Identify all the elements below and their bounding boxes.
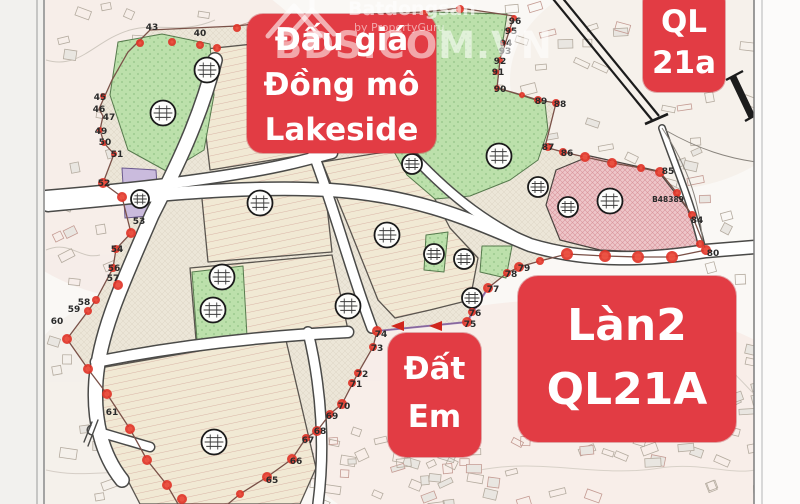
svg-text:59: 59	[68, 305, 81, 315]
svg-text:40: 40	[194, 29, 207, 39]
plot-line1: Đất	[388, 345, 481, 393]
svg-text:89: 89	[535, 97, 548, 107]
svg-text:86: 86	[561, 149, 574, 159]
svg-text:56: 56	[108, 264, 121, 274]
svg-text:71: 71	[350, 380, 363, 390]
svg-text:95: 95	[505, 27, 518, 37]
svg-text:87: 87	[542, 143, 555, 153]
svg-text:79: 79	[518, 264, 531, 274]
svg-text:51: 51	[111, 150, 124, 160]
svg-text:92: 92	[494, 57, 507, 67]
svg-text:61: 61	[106, 408, 119, 418]
highway-line1: QL	[643, 2, 725, 43]
plot-label-box: Đất Em	[388, 333, 481, 457]
svg-text:72: 72	[356, 370, 369, 380]
svg-text:60: 60	[51, 317, 64, 327]
svg-text:77: 77	[487, 285, 500, 295]
svg-text:52: 52	[98, 179, 111, 189]
svg-text:88: 88	[554, 100, 567, 110]
svg-text:78: 78	[505, 270, 518, 280]
auction-line1: Đấu giá	[247, 18, 436, 63]
lane-line2: QL21A	[518, 358, 736, 422]
svg-text:53: 53	[133, 217, 146, 227]
svg-text:65: 65	[266, 476, 279, 486]
auction-line3: Lakeside	[247, 108, 436, 153]
highway-line2: 21a	[643, 43, 725, 84]
svg-text:54: 54	[111, 245, 124, 255]
svg-text:69: 69	[326, 412, 339, 422]
svg-text:70: 70	[338, 402, 351, 412]
svg-text:45: 45	[94, 93, 107, 103]
svg-text:67: 67	[302, 436, 315, 446]
svg-text:49: 49	[95, 127, 108, 137]
svg-text:66: 66	[290, 457, 303, 467]
svg-text:50: 50	[99, 138, 112, 148]
svg-text:91: 91	[492, 68, 505, 78]
svg-text:96: 96	[509, 17, 522, 27]
svg-text:80: 80	[707, 249, 720, 259]
auction-label-box: Đấu giá Đồng mô Lakeside	[247, 14, 436, 153]
svg-text:84: 84	[691, 216, 704, 226]
svg-text:57: 57	[107, 274, 120, 284]
lane-label-box: Làn2 QL21A	[518, 276, 736, 442]
screenshot-root: 4340454647495051525354565758596061656667…	[0, 0, 800, 504]
auction-line2: Đồng mô	[247, 63, 436, 108]
svg-text:74: 74	[375, 330, 388, 340]
svg-text:47: 47	[103, 113, 116, 123]
plot-line2: Em	[388, 393, 481, 441]
svg-text:75: 75	[464, 320, 477, 330]
svg-text:76: 76	[469, 309, 482, 319]
svg-text:94: 94	[500, 39, 513, 49]
svg-text:73: 73	[371, 344, 384, 354]
svg-text:43: 43	[146, 23, 159, 33]
svg-text:B48389: B48389	[652, 195, 684, 204]
lane-line1: Làn2	[518, 294, 736, 358]
highway-label-box: QL 21a	[643, 0, 725, 92]
svg-text:90: 90	[494, 85, 507, 95]
svg-text:85: 85	[662, 167, 675, 177]
svg-text:68: 68	[314, 427, 327, 437]
